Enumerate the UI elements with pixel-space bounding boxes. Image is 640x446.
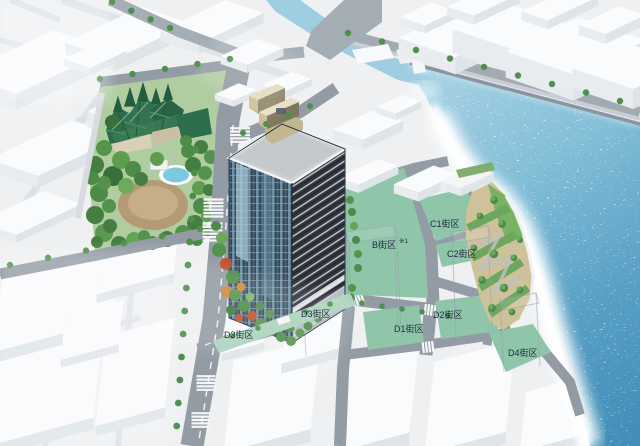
svg-text:C2街区: C2街区 [447,248,477,259]
svg-text:D4街区: D4街区 [508,347,538,358]
svg-text:D3街区: D3街区 [301,308,331,319]
svg-text:C1街区: C1街区 [430,218,460,229]
svg-text:B街区: B街区 [372,239,396,250]
svg-text:※1: ※1 [399,238,408,245]
svg-text:D3街区: D3街区 [224,329,254,340]
svg-text:D1街区: D1街区 [394,323,424,334]
svg-text:D2街区: D2街区 [433,309,463,320]
